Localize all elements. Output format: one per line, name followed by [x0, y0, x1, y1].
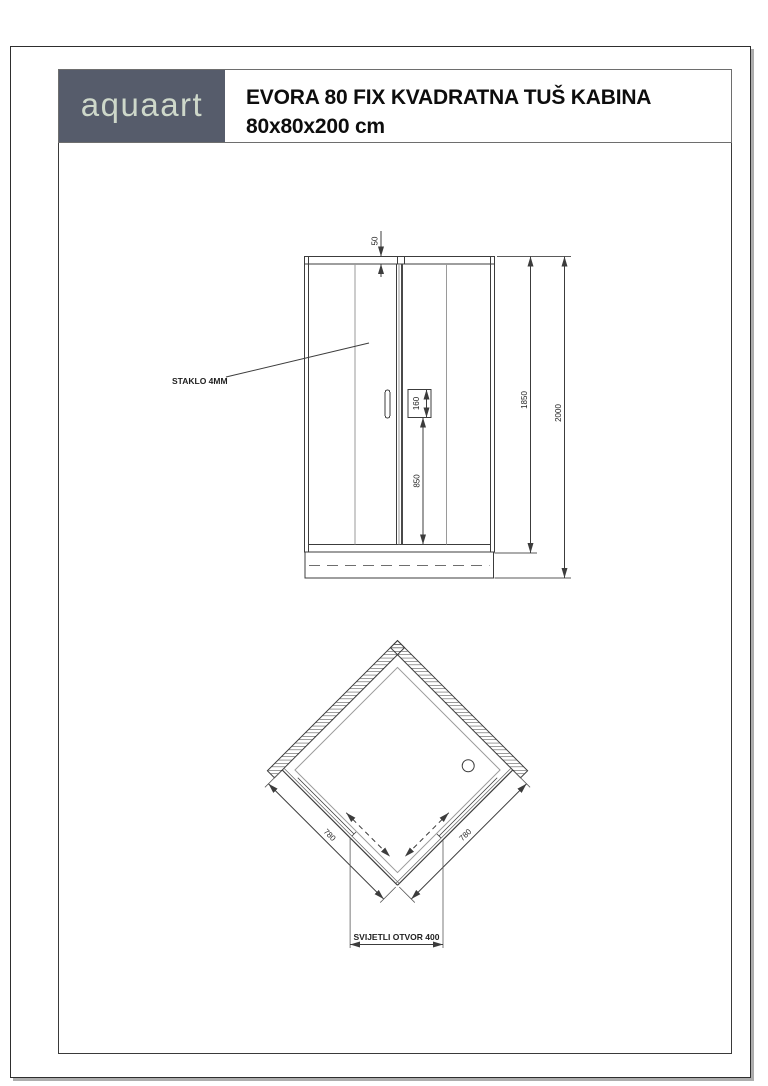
dim-50-label: 50: [371, 236, 380, 245]
dim-1850-label: 1850: [520, 391, 529, 409]
dim-850-label: 850: [413, 474, 422, 488]
plan-view-drawing: 780 780: [258, 641, 537, 920]
glass-note-label: STAKLO 4MM: [172, 376, 228, 386]
dim-160-label: 160: [412, 396, 421, 410]
door-slide-arrow-right: [405, 813, 449, 857]
door-handle: [385, 390, 390, 418]
dim-2000-label: 2000: [554, 404, 563, 422]
dim-780-left-label: 780: [322, 827, 338, 843]
drain-circle: [460, 757, 477, 774]
glass-note-leader-line: [226, 343, 369, 377]
opening-label: SVIJETLI OTVOR 400: [354, 932, 440, 942]
wall-hatch-top: [390, 641, 527, 778]
dim-780-right-label: 780: [457, 827, 473, 843]
wall-hatch-left: [267, 641, 404, 778]
technical-drawing: 50 160 850 1850 2000 STAKLO 4MM 780: [0, 0, 768, 1086]
